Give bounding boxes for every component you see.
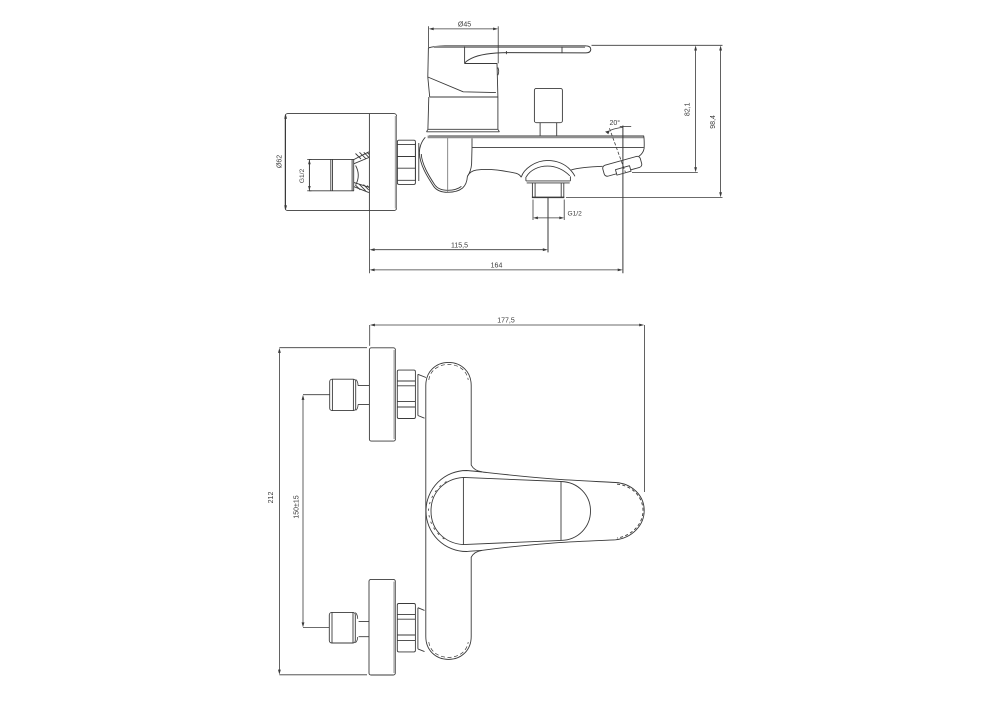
svg-text:177,5: 177,5	[497, 317, 515, 324]
svg-text:Ø45: Ø45	[458, 22, 471, 29]
svg-text:20°: 20°	[610, 119, 621, 127]
svg-text:82,1: 82,1	[685, 102, 692, 116]
svg-text:115,5: 115,5	[451, 242, 468, 249]
svg-text:164: 164	[491, 262, 503, 269]
svg-text:Ø62: Ø62	[276, 155, 283, 168]
svg-text:G1/2: G1/2	[299, 169, 306, 184]
svg-text:G1/2: G1/2	[568, 211, 583, 218]
svg-text:212: 212	[268, 492, 275, 504]
svg-text:98,4: 98,4	[710, 115, 717, 129]
svg-text:150±15: 150±15	[294, 495, 301, 518]
